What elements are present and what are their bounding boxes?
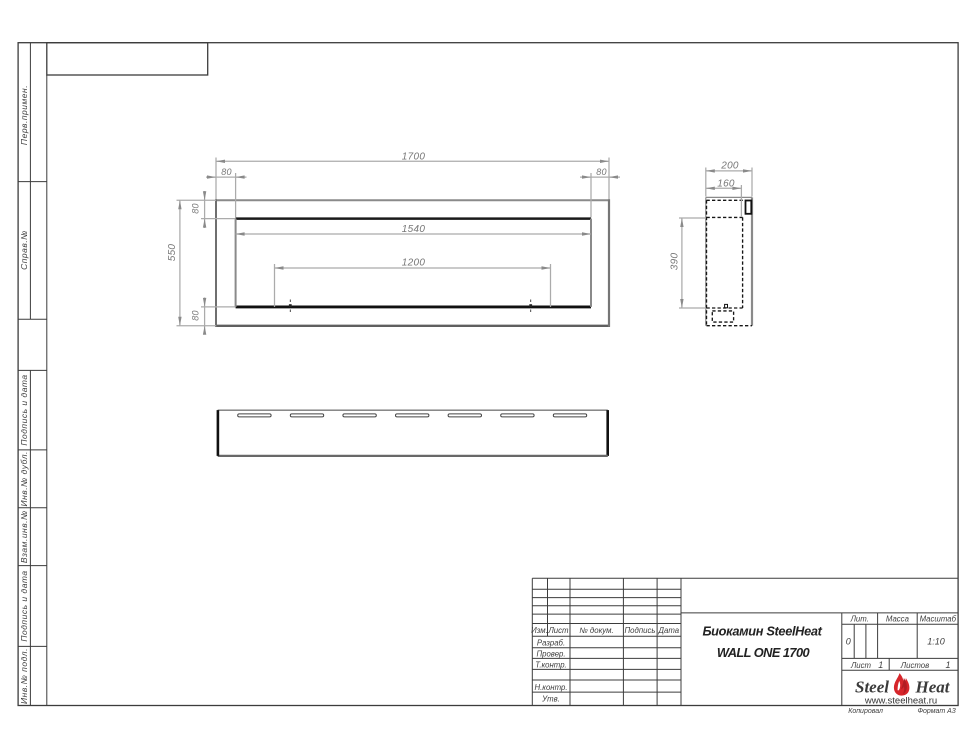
svg-text:80: 80: [191, 203, 201, 213]
svg-text:1200: 1200: [402, 258, 426, 269]
svg-text:Перв.примен.: Перв.примен.: [19, 85, 29, 145]
svg-text:Справ.№: Справ.№: [19, 230, 29, 270]
svg-text:80: 80: [221, 167, 231, 177]
svg-text:№ докум.: № докум.: [579, 626, 613, 635]
svg-text:Разраб.: Разраб.: [537, 639, 565, 648]
svg-text:Провер.: Провер.: [536, 650, 565, 659]
svg-text:Steel: Steel: [855, 678, 889, 697]
svg-text:WALL ONE 1700: WALL ONE 1700: [717, 645, 810, 660]
svg-text:Подпись: Подпись: [625, 626, 656, 635]
svg-text:1:10: 1:10: [927, 637, 945, 647]
svg-text:Т.контр.: Т.контр.: [535, 661, 566, 670]
svg-text:Утв.: Утв.: [541, 695, 560, 704]
svg-text:Биокамин SteelHeat: Биокамин SteelHeat: [702, 624, 822, 639]
svg-text:Подпись и дата: Подпись и дата: [19, 374, 29, 445]
svg-text:www.steelheat.ru: www.steelheat.ru: [864, 696, 937, 707]
svg-text:Heat: Heat: [915, 678, 951, 697]
svg-text:Лист: Лист: [850, 661, 872, 670]
svg-text:Подпись и дата: Подпись и дата: [19, 570, 29, 641]
svg-text:1: 1: [945, 660, 950, 670]
svg-text:Листов: Листов: [900, 661, 929, 670]
svg-text:80: 80: [191, 310, 201, 320]
svg-text:Масштаб: Масштаб: [920, 615, 957, 624]
svg-text:200: 200: [720, 161, 739, 172]
svg-text:Лист: Лист: [547, 626, 569, 635]
svg-text:Изм.: Изм.: [531, 626, 548, 635]
svg-text:Лит.: Лит.: [850, 615, 869, 624]
svg-text:1540: 1540: [402, 224, 426, 235]
svg-text:Копировал: Копировал: [848, 708, 883, 715]
svg-text:Масса: Масса: [886, 615, 910, 624]
svg-text:Дата: Дата: [658, 626, 680, 635]
svg-text:Н.контр.: Н.контр.: [534, 683, 567, 692]
svg-text:0: 0: [846, 637, 851, 647]
svg-text:Инв.№ подл.: Инв.№ подл.: [19, 648, 29, 704]
svg-text:1700: 1700: [402, 151, 426, 162]
svg-text:390: 390: [670, 252, 681, 270]
svg-text:Взам.инв.№: Взам.инв.№: [19, 510, 29, 563]
svg-text:160: 160: [717, 178, 735, 189]
svg-text:1: 1: [878, 660, 883, 670]
svg-text:Инв.№ дубл.: Инв.№ дубл.: [19, 451, 29, 506]
svg-text:80: 80: [596, 167, 606, 177]
svg-text:550: 550: [167, 244, 178, 262]
svg-text:Формат А3: Формат А3: [917, 708, 955, 715]
